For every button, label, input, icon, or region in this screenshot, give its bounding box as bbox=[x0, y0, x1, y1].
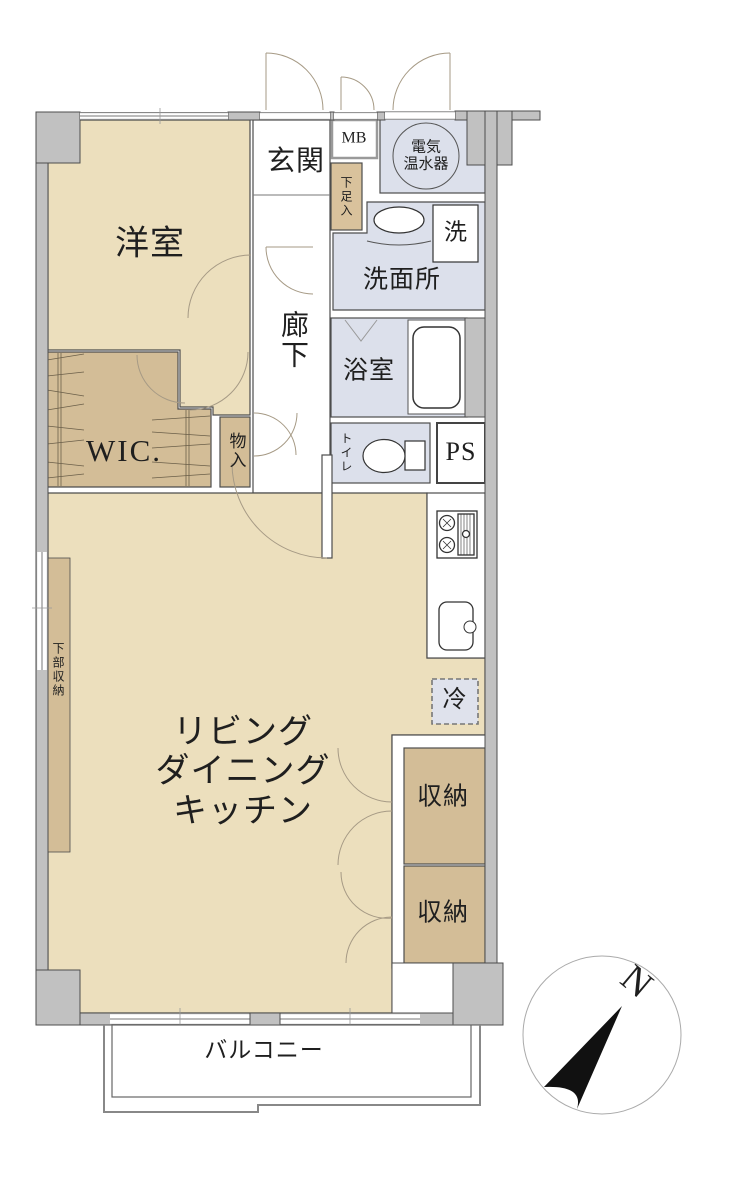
label-shuno-2: 収納 bbox=[417, 899, 469, 928]
stove bbox=[437, 511, 477, 558]
toilet-tank bbox=[405, 441, 425, 470]
label-ps: PS bbox=[446, 437, 477, 467]
toilet-bowl bbox=[363, 440, 405, 473]
label-washer: 洗 bbox=[444, 220, 468, 247]
wall-corner-bottomleft bbox=[36, 970, 80, 1025]
label-wic: WIC. bbox=[86, 433, 162, 469]
washbasin bbox=[374, 207, 424, 233]
label-monoire: 物入 bbox=[228, 432, 245, 470]
lower-storage bbox=[46, 558, 70, 852]
mb-opening bbox=[334, 113, 377, 120]
wall-stub bbox=[322, 455, 332, 558]
label-genkan: 玄関 bbox=[267, 146, 325, 178]
label-rouka: 廊下 bbox=[278, 310, 306, 370]
label-ldk: リビング ダイニング キッチン bbox=[156, 713, 331, 831]
sink-faucet bbox=[464, 621, 476, 633]
label-balcony: バルコニー bbox=[204, 1038, 324, 1065]
wall-corner-topleft bbox=[36, 112, 80, 163]
window-mullion bbox=[250, 1013, 280, 1025]
label-fridge: 冷 bbox=[443, 687, 468, 715]
bathtub bbox=[413, 327, 460, 408]
floor-plan: 洋室 玄関 MB 電気 温水器 下足入 洗 洗面所 浴室 廊下 WIC. 物入 … bbox=[0, 0, 746, 1200]
label-shoebox: 下足入 bbox=[340, 176, 352, 218]
label-toilet: トイレ bbox=[340, 432, 352, 474]
wall-right bbox=[485, 111, 497, 1013]
label-yoshitsu: 洋室 bbox=[115, 224, 185, 263]
label-senmenjo: 洗面所 bbox=[363, 266, 441, 295]
label-bathroom: 浴室 bbox=[343, 357, 395, 386]
label-mb: MB bbox=[342, 130, 367, 149]
heater-opening bbox=[385, 112, 455, 120]
label-lower-storage: 下部収納 bbox=[52, 642, 64, 698]
wall-block-bottomright bbox=[453, 963, 503, 1025]
label-heater: 電気 温水器 bbox=[403, 140, 448, 175]
label-shuno-1: 収納 bbox=[417, 783, 469, 812]
corner-space bbox=[392, 963, 453, 1013]
floorplan-svg bbox=[0, 0, 746, 1200]
entrance-opening bbox=[260, 113, 330, 120]
